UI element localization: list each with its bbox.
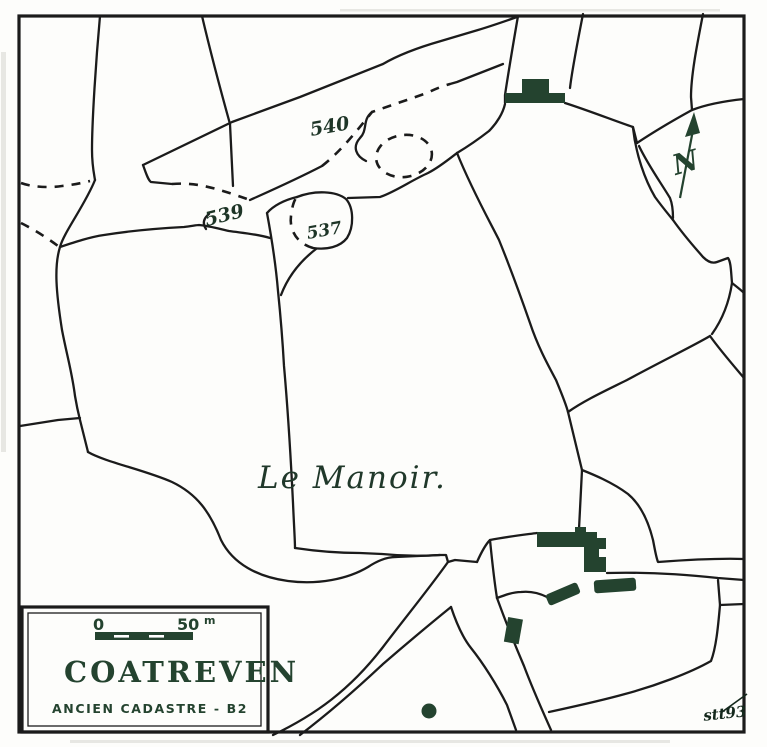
scale-end-label: 50 [177,615,199,634]
parcel-number-540: 540 [308,112,351,141]
boundary-line [202,16,230,124]
building-outbuilding-b [594,578,637,594]
yard-bottom-edge [497,592,547,598]
north-arrow-head [685,112,700,137]
central-parcel-left-edge [267,213,295,548]
boundary-line [637,110,692,143]
legend-title: COATREVEN [64,655,299,689]
boundary-line [56,180,95,452]
map-frame [19,16,744,732]
scale-start-label: 0 [93,615,104,634]
building-outbuilding-a [545,582,581,606]
boundary-line [250,166,322,200]
boundary-line [718,580,744,605]
boundary-line [281,249,316,295]
signature-text: stt93 [702,702,747,724]
boundary-line [565,103,637,143]
parcel-number-537: 537 [305,218,344,244]
dashed-boundary [21,181,90,187]
north-arrow: N [668,112,704,198]
scan-edge-left [1,52,6,452]
north-label: N [668,143,704,182]
legend: 0 50 m COATREVEN ANCIEN CADASTRE - B2 [22,607,299,732]
scan-edge-bottom [70,740,670,743]
scale-bar-tick [114,635,129,638]
boundary-line [568,336,710,412]
parcel-numbers: 540 539 537 [202,112,351,244]
scale-bar: 0 50 m [93,614,215,640]
yard-left-edge [490,540,497,598]
road-east-top-edge [582,470,744,562]
boundary-line [570,14,583,88]
scale-bar-rule [95,632,193,640]
boundary-line [230,124,233,186]
building-manor [537,527,606,572]
buildings [422,79,637,719]
boundary-line [732,283,744,293]
central-parcel-bottom-edge [295,548,477,562]
boundary-line [92,16,100,180]
legend-subtitle: ANCIEN CADASTRE - B2 [52,701,248,716]
parcel-number-539: 539 [202,200,246,231]
central-parcel-right-edge [457,153,582,529]
boundary-line [457,104,505,153]
boundary-line [639,146,673,218]
boundary-line [691,14,703,110]
strip-dashed-segment [172,184,250,200]
dashed-boundary [21,223,58,246]
boundary-line [673,220,732,334]
boundary-line [692,99,744,110]
scale-bar-tick [149,635,164,638]
boundary-line [450,64,503,84]
well-dot [422,704,437,719]
road-sw-upper-edge [273,562,448,735]
boundary-line [505,16,518,103]
cadastral-map: N 540 539 537 Le Manoir. 0 50 m COATREVE… [0,0,767,747]
signature: stt93 [702,694,747,725]
boundary-line [20,418,80,426]
squiggle-line [356,112,372,161]
scan-edge-top [340,9,720,12]
boundary-curve-se [549,605,720,712]
scale-unit-label: m [204,614,215,627]
strip-top-edge [143,17,517,165]
map-canvas: N 540 539 537 Le Manoir. 0 50 m COATREVE… [0,0,767,747]
place-label: Le Manoir. [257,460,447,496]
building-north [505,79,565,103]
boundary-line [60,225,270,247]
boundary-line [143,165,172,184]
parcel-boundaries [20,14,744,735]
boundary-line [710,336,744,378]
yard-top-edge [477,533,537,562]
road-south-right-edge [497,598,551,730]
